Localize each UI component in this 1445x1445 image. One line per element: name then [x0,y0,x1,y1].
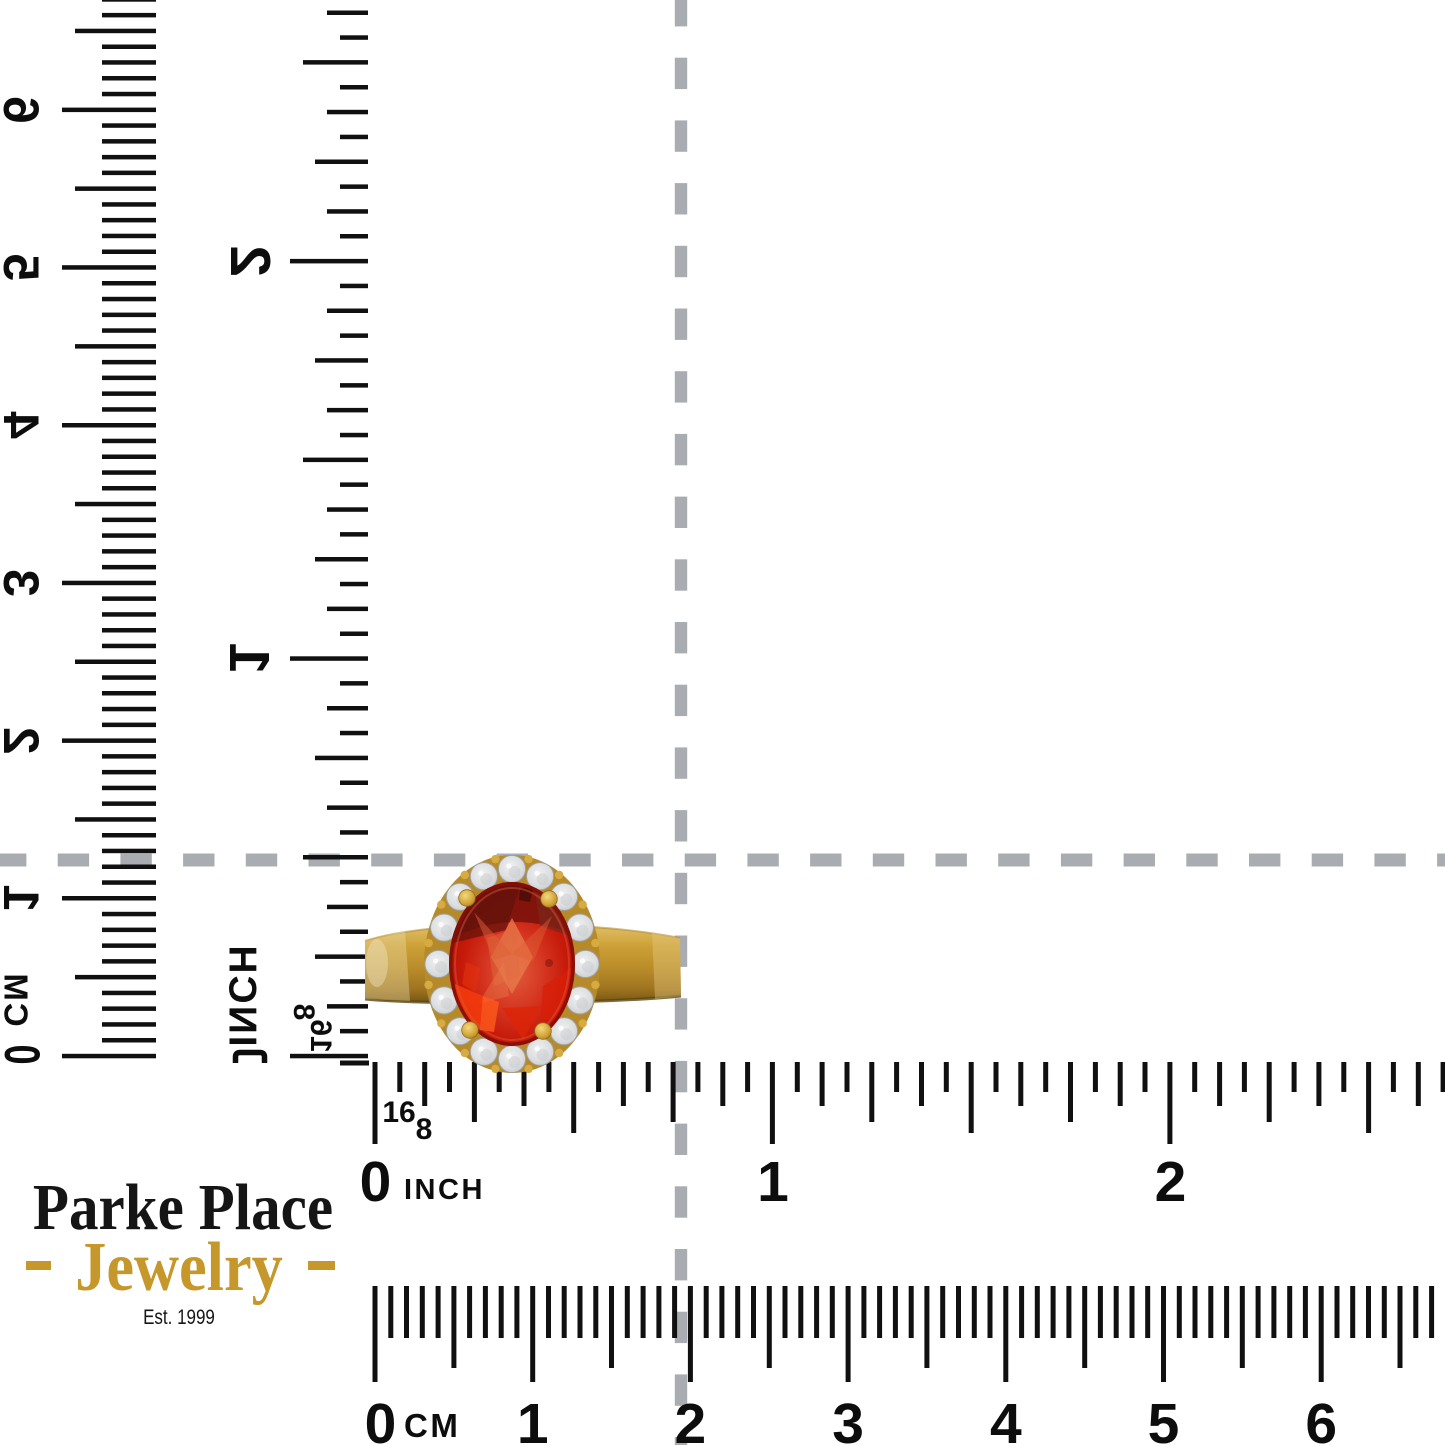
svg-text:6: 6 [1305,1392,1337,1445]
svg-text:1: 1 [217,643,281,675]
svg-text:1: 1 [757,1150,789,1214]
svg-text:4: 4 [0,411,49,439]
svg-text:CM: CM [0,971,35,1026]
svg-text:Jewelry: Jewelry [75,1229,283,1306]
svg-text:3: 3 [0,569,49,597]
svg-text:2: 2 [1155,1150,1187,1214]
svg-text:3: 3 [832,1392,864,1445]
svg-text:4: 4 [990,1392,1022,1445]
svg-text:INCH: INCH [404,1174,485,1206]
svg-text:CM: CM [404,1407,460,1444]
svg-text:2: 2 [218,245,282,277]
svg-text:2: 2 [675,1392,707,1445]
svg-text:0: 0 [0,1044,49,1064]
svg-text:1: 1 [0,884,49,912]
svg-text:1: 1 [517,1392,549,1445]
svg-text:6: 6 [0,96,49,124]
svg-text:8: 8 [416,1113,433,1146]
svg-text:Est. 1999: Est. 1999 [143,1306,215,1329]
svg-text:INCH: INCH [221,943,264,1046]
svg-text:16: 16 [382,1096,415,1129]
svg-text:0: 0 [360,1150,392,1214]
svg-text:8: 8 [287,1004,320,1021]
svg-text:0: 0 [365,1392,397,1445]
svg-text:2: 2 [0,727,49,755]
svg-text:16: 16 [304,1019,337,1052]
svg-text:5: 5 [0,254,49,282]
svg-text:5: 5 [1148,1392,1180,1445]
